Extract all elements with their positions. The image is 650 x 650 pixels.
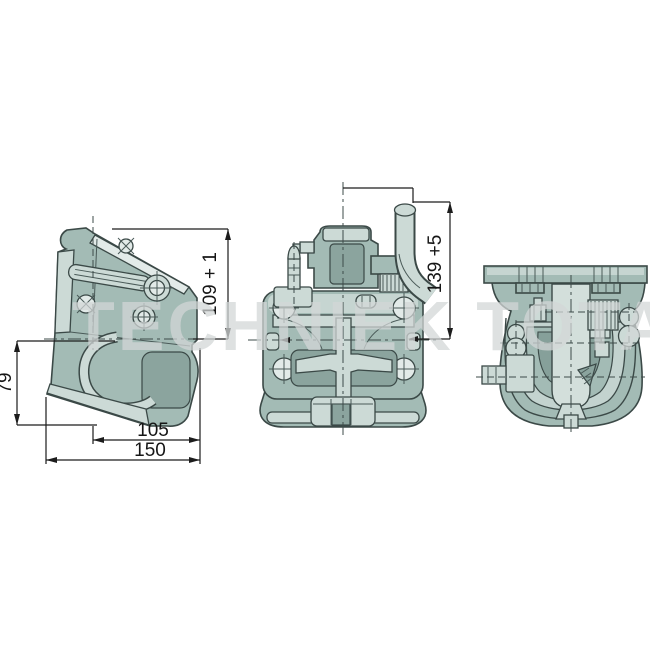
dim-handle-height-label: 139 +5 xyxy=(425,235,446,294)
technical-drawing-canvas: 109 + 1 79 105 150 139 +5 TECHNIEK TOTAA… xyxy=(0,0,650,650)
view-top xyxy=(476,266,647,432)
side-left-face xyxy=(55,250,74,333)
dim-jaw-height-label: 79 xyxy=(0,372,16,393)
view-side xyxy=(44,216,214,426)
top-left-block xyxy=(506,355,534,392)
side-hole-small xyxy=(77,295,95,313)
dim-upper-height-label: 109 + 1 xyxy=(200,252,221,316)
gusset-hole xyxy=(118,238,134,254)
dim-inner-width-label: 105 xyxy=(137,420,169,441)
hitch-three-view-drawing: 109 + 1 79 105 150 139 +5 xyxy=(0,0,650,650)
dim-overall-width-label: 150 xyxy=(134,440,166,461)
view-front xyxy=(248,182,437,435)
hex-bolt xyxy=(356,295,376,308)
